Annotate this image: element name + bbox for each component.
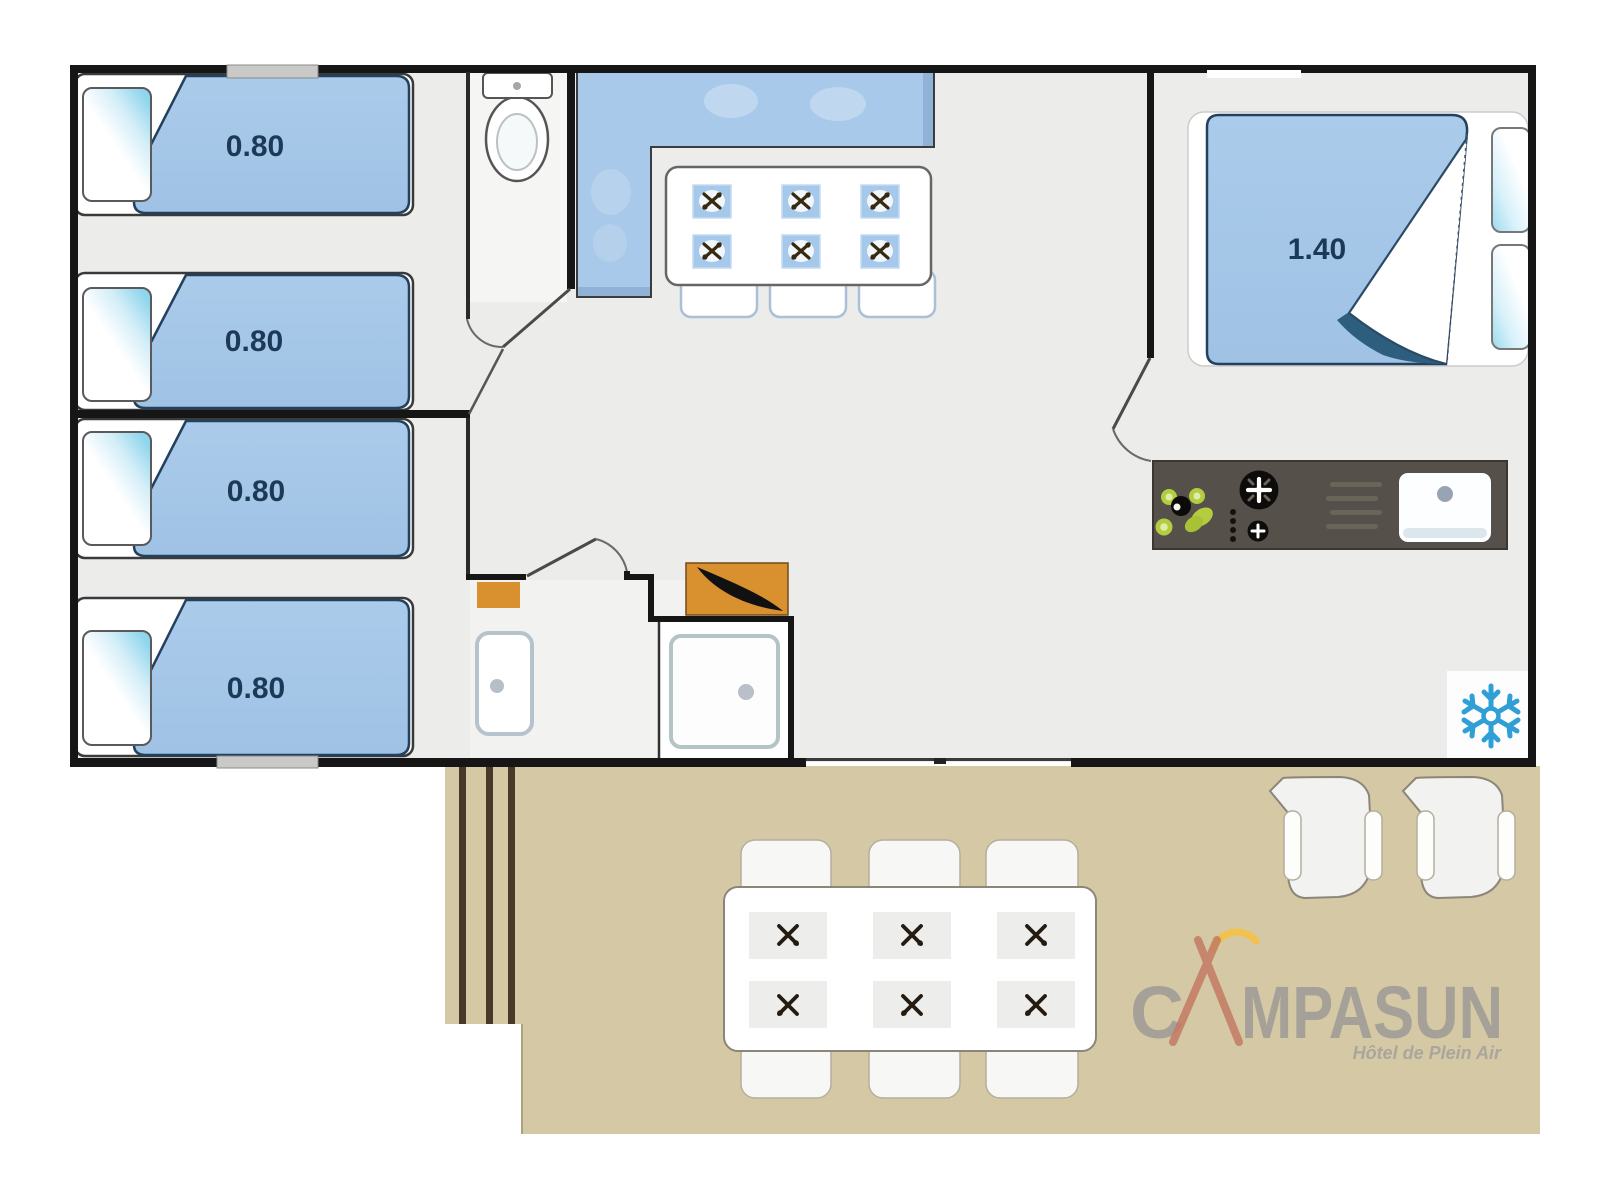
svg-text:0.80: 0.80 <box>227 475 285 508</box>
svg-text:MPASUN: MPASUN <box>1241 971 1503 1054</box>
svg-text:1.40: 1.40 <box>1288 233 1346 266</box>
svg-text:Hôtel de Plein Air: Hôtel de Plein Air <box>1353 1043 1502 1063</box>
svg-text:0.80: 0.80 <box>225 325 283 358</box>
svg-text:0.80: 0.80 <box>226 130 284 163</box>
svg-text:0.80: 0.80 <box>227 672 285 705</box>
